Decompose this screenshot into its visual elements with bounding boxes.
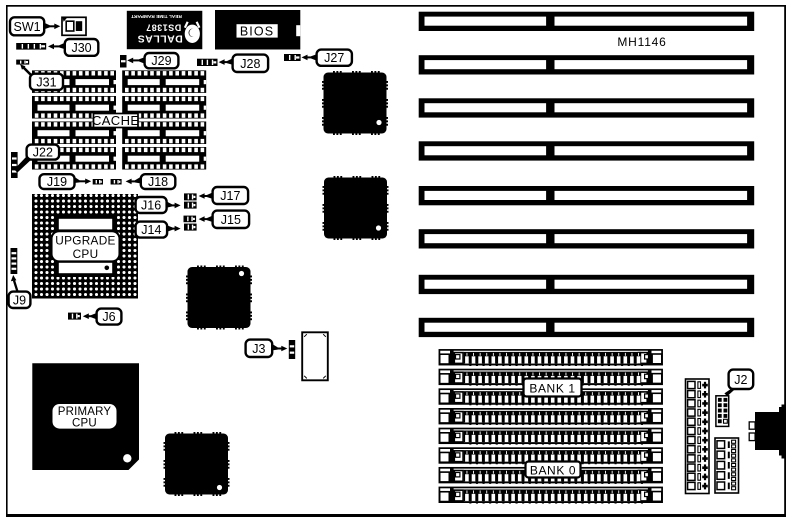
svg-text:J27: J27	[324, 51, 344, 65]
svg-text:J6: J6	[102, 310, 115, 324]
svg-text:UPGRADE: UPGRADE	[55, 234, 115, 248]
svg-text:J30: J30	[71, 41, 91, 55]
svg-text:BIOS: BIOS	[240, 24, 274, 38]
svg-text:J3: J3	[252, 342, 265, 356]
svg-text:J16: J16	[141, 199, 161, 213]
svg-text:J19: J19	[47, 175, 67, 189]
svg-text:CPU: CPU	[72, 417, 97, 429]
svg-text:SW1: SW1	[14, 20, 41, 34]
svg-text:MH1146: MH1146	[617, 35, 666, 49]
svg-text:PRIMARY: PRIMARY	[58, 406, 112, 418]
svg-text:BANK 1: BANK 1	[529, 381, 575, 395]
svg-text:J9: J9	[13, 293, 26, 307]
svg-text:J18: J18	[148, 175, 168, 189]
svg-text:J22: J22	[33, 146, 53, 160]
svg-text:J15: J15	[221, 213, 241, 227]
svg-text:REAL TIME RAMPART: REAL TIME RAMPART	[131, 13, 182, 19]
svg-text:CACHE: CACHE	[92, 113, 140, 128]
svg-text:DALLAS: DALLAS	[137, 33, 183, 45]
svg-text:CPU: CPU	[73, 247, 99, 261]
svg-text:J29: J29	[151, 54, 171, 68]
svg-text:BANK 0: BANK 0	[530, 463, 576, 477]
svg-text:J31: J31	[36, 75, 56, 89]
svg-text:DS1387: DS1387	[146, 22, 182, 32]
svg-text:J14: J14	[141, 223, 161, 237]
svg-text:J28: J28	[240, 57, 260, 71]
svg-text:J2: J2	[734, 373, 747, 387]
svg-text:J17: J17	[220, 189, 240, 203]
